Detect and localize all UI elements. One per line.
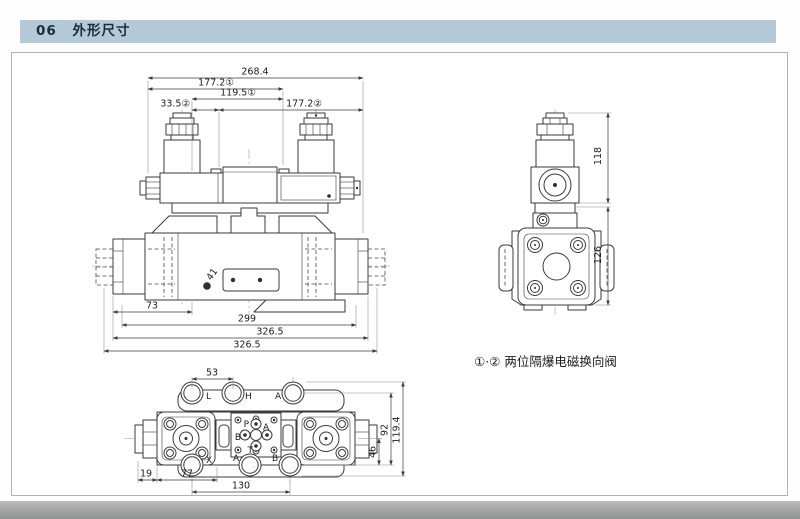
drawing-frame: 41 268.4 177.2① 119.5① 33.5② — [11, 52, 788, 496]
catalog-page: 06 外形尺寸 — [0, 0, 800, 519]
solenoid-tower-left — [164, 113, 200, 173]
dim-19: 19 — [140, 469, 152, 480]
center-port-plate: P A B T — [231, 413, 281, 457]
main-valve-body — [145, 203, 345, 312]
side-view: 118 126 — [499, 109, 614, 315]
section-header: 06 外形尺寸 — [20, 20, 776, 43]
dim-118: 118 — [593, 147, 604, 165]
side-solenoid-tower — [531, 113, 579, 203]
port-label-a-center: A — [263, 423, 270, 433]
connector-block-right — [280, 420, 296, 450]
end-cap-right — [335, 239, 385, 294]
port-label-p: P — [244, 420, 250, 430]
page-footer-strip — [0, 501, 800, 519]
footnote-valve-type: ①·② 两位隔爆电磁换向阀 — [474, 354, 617, 369]
port-label-l: L — [206, 392, 211, 402]
dim-92: 92 — [380, 424, 391, 436]
dim-119-5: 119.5① — [220, 88, 256, 99]
bottom-flange-right — [297, 412, 355, 465]
dim-46: 46 — [368, 446, 379, 458]
solenoid-tower-right — [298, 113, 334, 173]
technical-drawing: 41 268.4 177.2① 119.5① 33.5② — [12, 53, 787, 495]
dim-33-5: 33.5② — [160, 99, 190, 110]
bottom-view: L H A 53 — [124, 368, 406, 496]
end-cap-left — [96, 239, 145, 294]
port-label-b-bottom: B — [272, 454, 278, 464]
dim-73: 73 — [146, 301, 158, 312]
dim-268-4: 268.4 — [241, 67, 268, 78]
dim-130: 130 — [232, 481, 250, 492]
port-label-h: H — [245, 392, 252, 402]
bore-marker — [203, 282, 211, 290]
dim-299: 299 — [238, 314, 256, 325]
connector-block-left — [216, 420, 232, 450]
subplate-edge — [254, 300, 345, 312]
dim-53: 53 — [206, 368, 218, 379]
section-title: 外形尺寸 — [73, 23, 131, 39]
dim-126: 126 — [593, 246, 604, 264]
top-port-rail: L H A — [178, 382, 344, 411]
dim-77: 77 — [181, 469, 193, 480]
section-number: 06 — [36, 23, 57, 39]
nameplate — [223, 269, 279, 291]
port-label-b-center: B — [235, 433, 241, 443]
front-view: 41 268.4 177.2① 119.5① 33.5② — [92, 67, 392, 355]
dim-326-5-outer: 326.5 — [233, 340, 260, 351]
side-lug-left — [499, 245, 513, 291]
port-label-a-top: A — [275, 392, 282, 402]
port-label-x: X — [206, 456, 212, 466]
dim-177-2-2: 177.2② — [286, 99, 322, 110]
port-label-a-bottom: A — [233, 454, 240, 464]
dim-326-5-inner: 326.5 — [256, 327, 283, 338]
dim-119-4: 119.4 — [392, 416, 403, 443]
